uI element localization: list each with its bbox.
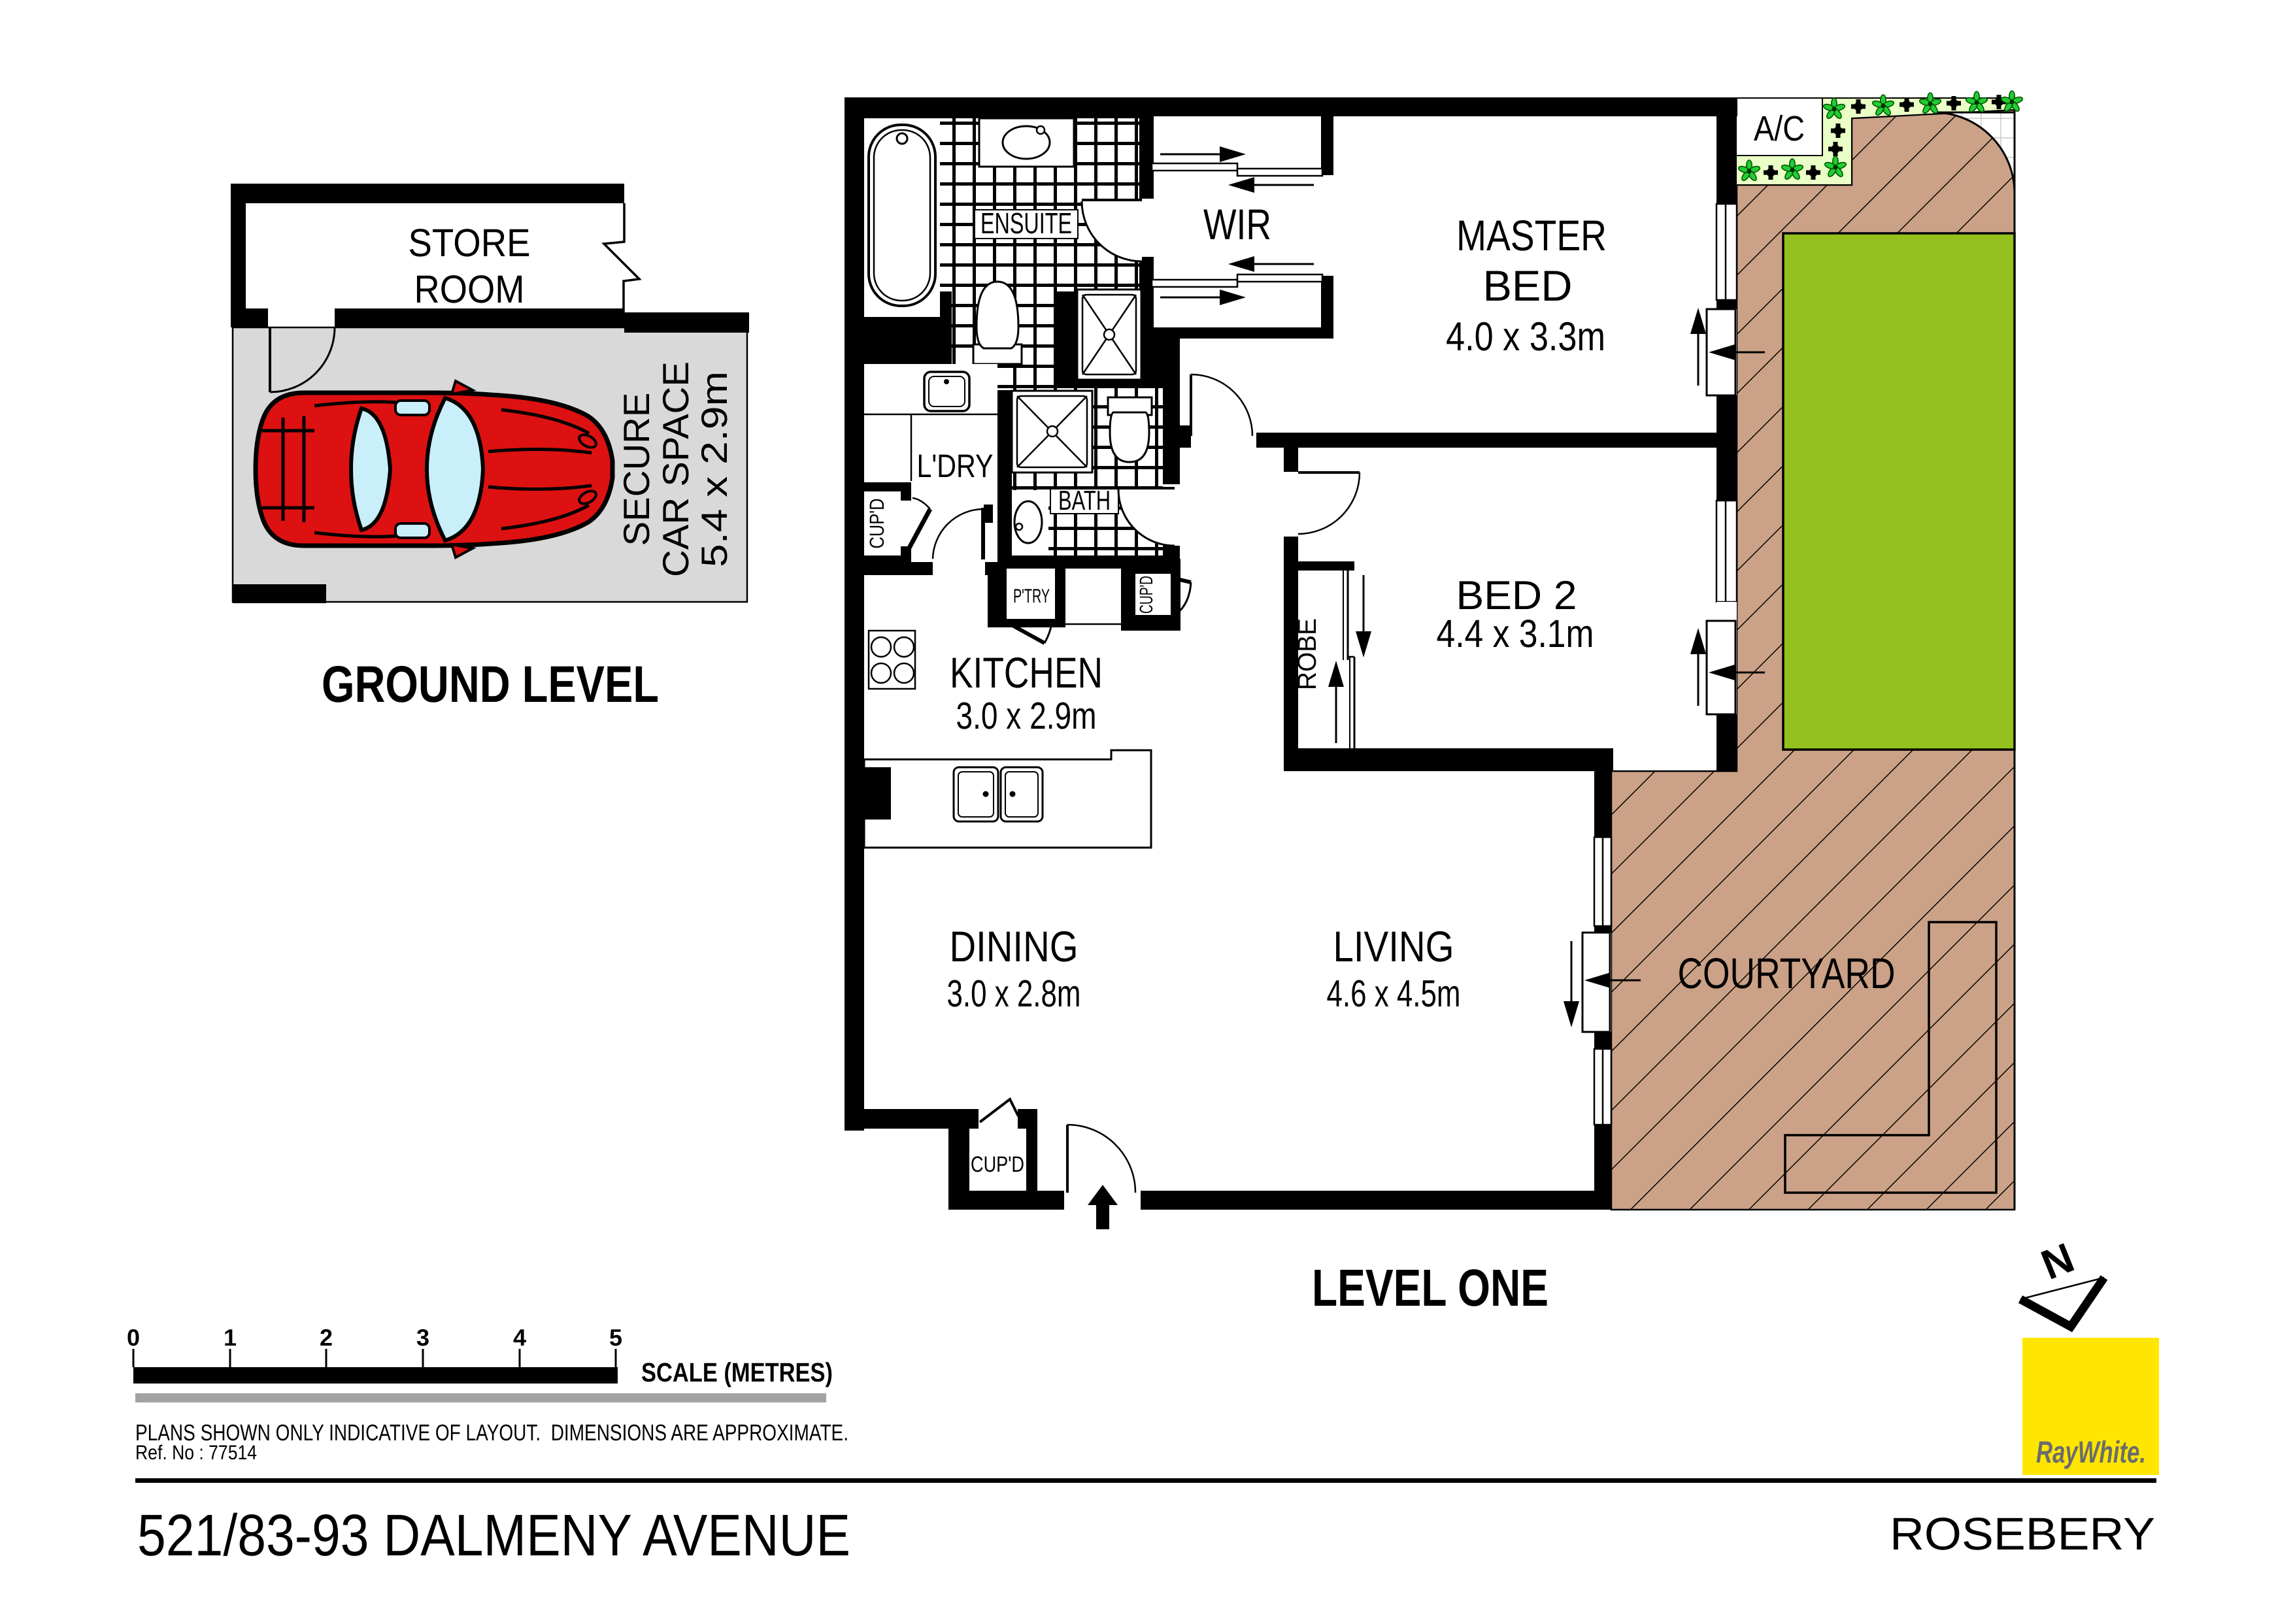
svg-text:DINING: DINING bbox=[950, 922, 1079, 970]
svg-text:BATH: BATH bbox=[1058, 485, 1111, 516]
svg-text:ROBE: ROBE bbox=[1293, 618, 1322, 690]
svg-text:Ref. No : 77514: Ref. No : 77514 bbox=[135, 1441, 257, 1464]
svg-text:MASTER: MASTER bbox=[1456, 211, 1607, 259]
svg-text:COURTYARD: COURTYARD bbox=[1678, 949, 1896, 997]
svg-text:521/83-93 DALMENY AVENUE: 521/83-93 DALMENY AVENUE bbox=[137, 1503, 850, 1568]
svg-text:ROOM: ROOM bbox=[414, 267, 525, 311]
svg-text:CAR SPACE: CAR SPACE bbox=[655, 361, 696, 577]
svg-text:ROSEBERY: ROSEBERY bbox=[1890, 1508, 2155, 1559]
svg-text:RayWhite.: RayWhite. bbox=[2036, 1434, 2146, 1469]
svg-text:LIVING: LIVING bbox=[1333, 922, 1454, 970]
svg-text:CUP'D: CUP'D bbox=[1136, 576, 1156, 614]
svg-text:ENSUITE: ENSUITE bbox=[980, 207, 1072, 240]
svg-text:KITCHEN: KITCHEN bbox=[950, 648, 1103, 697]
svg-text:P'TRY: P'TRY bbox=[1013, 586, 1050, 607]
svg-text:4.0 x 3.3m: 4.0 x 3.3m bbox=[1446, 314, 1605, 359]
svg-text:1: 1 bbox=[224, 1324, 237, 1351]
svg-text:0: 0 bbox=[127, 1324, 140, 1351]
svg-text:SCALE (METRES): SCALE (METRES) bbox=[641, 1357, 833, 1387]
svg-text:WIR: WIR bbox=[1203, 200, 1271, 248]
svg-text:SECURE: SECURE bbox=[616, 393, 657, 546]
svg-text:CUP'D: CUP'D bbox=[865, 499, 888, 549]
svg-text:3.0 x 2.8m: 3.0 x 2.8m bbox=[947, 972, 1081, 1015]
svg-text:BED: BED bbox=[1483, 261, 1573, 310]
svg-text:L'DRY: L'DRY bbox=[917, 448, 994, 484]
svg-text:2: 2 bbox=[320, 1324, 333, 1351]
svg-text:STORE: STORE bbox=[409, 221, 531, 265]
svg-text:GROUND LEVEL: GROUND LEVEL bbox=[322, 655, 659, 713]
svg-text:4.4 x 3.1m: 4.4 x 3.1m bbox=[1437, 612, 1594, 655]
svg-text:5: 5 bbox=[609, 1324, 622, 1351]
svg-text:4: 4 bbox=[513, 1324, 526, 1351]
svg-text:5.4 x 2.9m: 5.4 x 2.9m bbox=[694, 371, 735, 567]
svg-text:CUP'D: CUP'D bbox=[971, 1152, 1024, 1177]
svg-text:4.6 x 4.5m: 4.6 x 4.5m bbox=[1327, 972, 1461, 1015]
svg-text:3.0 x 2.9m: 3.0 x 2.9m bbox=[956, 695, 1097, 737]
svg-text:3: 3 bbox=[416, 1324, 429, 1351]
svg-text:LEVEL ONE: LEVEL ONE bbox=[1312, 1259, 1548, 1317]
svg-text:A/C: A/C bbox=[1754, 109, 1805, 148]
